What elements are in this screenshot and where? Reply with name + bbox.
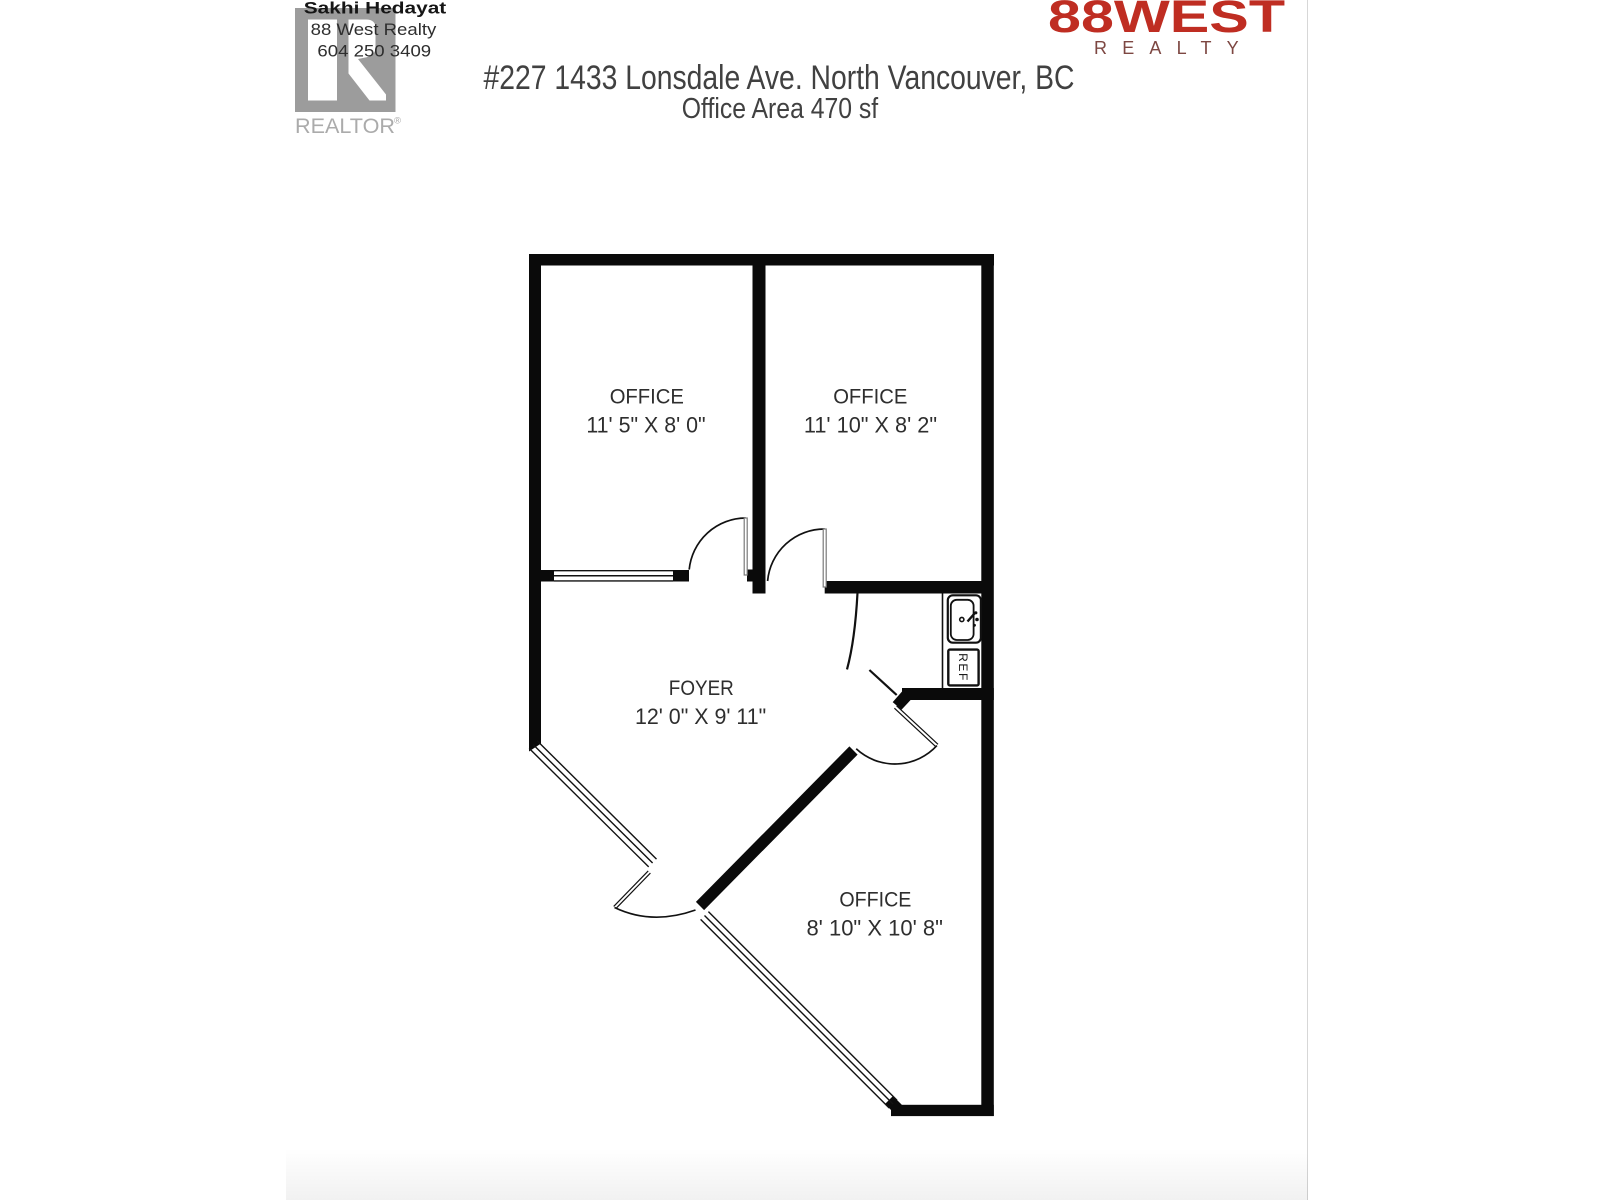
svg-text:88WEST: 88WEST [1048, 0, 1285, 42]
svg-text:REF: REF [956, 653, 970, 682]
svg-text:Sakhi Hedayat: Sakhi Hedayat [304, 0, 447, 17]
svg-text:Office Area 470 sf: Office Area 470 sf [682, 93, 879, 125]
svg-text:88 West Realty: 88 West Realty [311, 21, 437, 39]
svg-text:FOYER: FOYER [669, 677, 734, 700]
svg-text:11' 5" X 8' 0": 11' 5" X 8' 0" [586, 413, 705, 438]
svg-text:11' 10" X 8' 2": 11' 10" X 8' 2" [804, 413, 937, 438]
svg-text:REALTY: REALTY [1094, 38, 1254, 58]
svg-text:OFFICE: OFFICE [833, 385, 907, 408]
svg-text:#227 1433 Lonsdale Ave. North: #227 1433 Lonsdale Ave. North Vancouver,… [484, 59, 1075, 97]
svg-text:12' 0" X 9' 11": 12' 0" X 9' 11" [635, 704, 766, 729]
svg-text:®: ® [394, 116, 401, 127]
svg-text:OFFICE: OFFICE [839, 889, 911, 912]
svg-text:8' 10" X 10' 8": 8' 10" X 10' 8" [806, 916, 943, 941]
svg-text:604 250 3409: 604 250 3409 [317, 43, 431, 61]
svg-text:OFFICE: OFFICE [610, 385, 684, 408]
svg-text:REALTOR: REALTOR [295, 114, 395, 138]
